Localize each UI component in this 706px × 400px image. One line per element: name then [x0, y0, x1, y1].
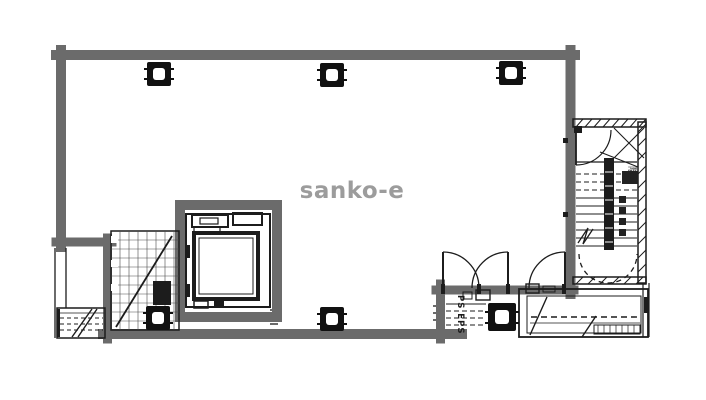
pipe-shaft-label: PS EPS — [455, 295, 465, 334]
elevator-car-inner — [199, 238, 253, 294]
stairwell-threshold — [574, 126, 582, 133]
light-well-notch-2 — [111, 260, 118, 267]
column — [144, 62, 174, 86]
door-jamb-3 — [506, 284, 510, 294]
door-swing-middle — [472, 252, 508, 288]
stairwell-swing-arc-dashed — [579, 254, 637, 283]
wall-ticks — [271, 306, 440, 324]
stairwell-right-wall-hatch — [638, 124, 646, 272]
fire-escape — [55, 248, 105, 338]
stairwell-label: 階段 — [626, 166, 638, 184]
door-jamb-2 — [477, 284, 481, 294]
door-jamb-1 — [441, 284, 445, 294]
linework — [55, 119, 649, 338]
column — [496, 61, 526, 85]
column — [485, 303, 519, 331]
watermark-text: sanko-e — [300, 178, 405, 204]
elevator-door-mark — [214, 300, 224, 307]
pipe-shaft — [446, 290, 490, 325]
machine-room-inner — [527, 296, 641, 333]
machine-room — [519, 283, 649, 337]
light-well-duct — [153, 281, 171, 305]
machine-room-right-block — [644, 297, 649, 313]
elevator-counterweight — [192, 215, 228, 227]
stairwell-top-wall-hatch — [576, 119, 646, 127]
door-swing-right — [529, 252, 565, 288]
column — [317, 307, 347, 331]
elevator-counterweight-inner — [200, 218, 218, 224]
elevator-guide-rail-bottom — [185, 284, 190, 297]
stairwell-right-wall — [638, 122, 646, 283]
column — [143, 306, 173, 330]
pipe-shaft-dashes — [446, 311, 486, 325]
light-well-notch-1 — [111, 236, 118, 243]
wall-tick-1 — [563, 138, 568, 143]
stair-annotation-marks — [619, 196, 626, 236]
door-swing-left — [443, 252, 479, 288]
light-well-notch-3 — [111, 284, 118, 291]
elevator-car — [194, 233, 258, 299]
stairwell — [573, 119, 646, 284]
wall-tick-2 — [563, 212, 568, 217]
column — [317, 63, 347, 87]
elevator — [185, 213, 270, 308]
floor-plan-drawing: sanko-e PS EPS 階段 — [0, 0, 706, 400]
floor-plan-canvas: sanko-e PS EPS 階段 — [0, 0, 706, 400]
elevator-guide-rail-top — [185, 245, 190, 258]
